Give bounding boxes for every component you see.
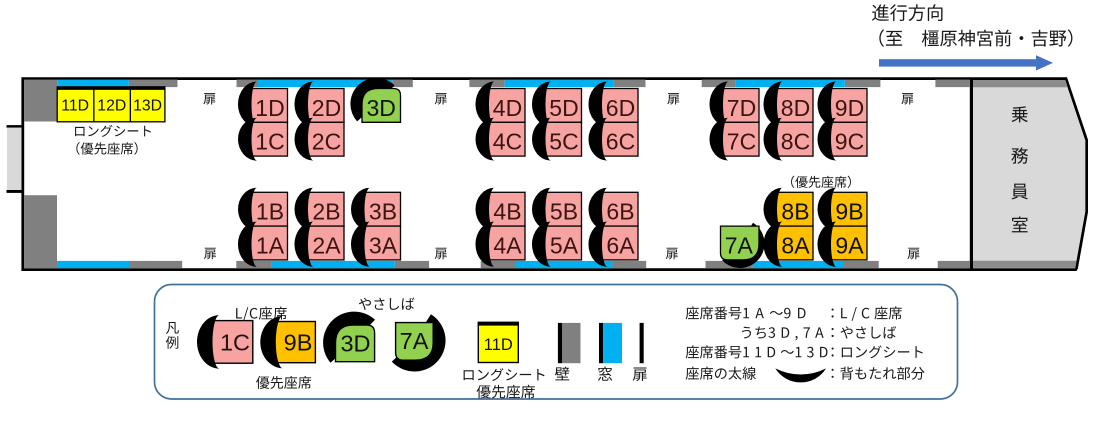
- svg-text:9A: 9A: [835, 233, 864, 259]
- svg-text:4B: 4B: [493, 199, 521, 225]
- svg-text:8A: 8A: [781, 233, 810, 259]
- svg-text:5C: 5C: [549, 129, 578, 155]
- svg-text:7C: 7C: [727, 129, 756, 155]
- svg-text:7A: 7A: [400, 328, 429, 354]
- svg-text:7A: 7A: [725, 233, 754, 259]
- svg-text:6A: 6A: [606, 233, 635, 259]
- svg-text:1D: 1D: [255, 95, 284, 121]
- svg-text:2D: 2D: [312, 95, 341, 121]
- svg-text:9D: 9D: [835, 95, 864, 121]
- svg-text:6C: 6C: [606, 129, 635, 155]
- svg-text:9B: 9B: [835, 199, 863, 225]
- svg-text:9B: 9B: [284, 330, 313, 356]
- svg-text:1C: 1C: [255, 129, 284, 155]
- svg-text:4A: 4A: [493, 233, 522, 259]
- svg-text:6D: 6D: [606, 95, 635, 121]
- svg-text:8D: 8D: [781, 95, 810, 121]
- svg-text:5A: 5A: [550, 233, 579, 259]
- svg-text:7D: 7D: [727, 95, 756, 121]
- svg-text:11D: 11D: [484, 336, 513, 354]
- svg-text:1B: 1B: [256, 199, 284, 225]
- svg-text:3D: 3D: [366, 95, 395, 121]
- svg-text:13D: 13D: [133, 98, 162, 115]
- svg-text:3A: 3A: [369, 233, 398, 259]
- svg-text:2A: 2A: [312, 233, 341, 259]
- svg-text:3D: 3D: [340, 331, 370, 357]
- svg-text:2C: 2C: [312, 129, 341, 155]
- svg-text:5D: 5D: [549, 95, 578, 121]
- svg-text:2B: 2B: [312, 199, 340, 225]
- svg-text:1A: 1A: [256, 233, 285, 259]
- svg-text:8B: 8B: [781, 199, 809, 225]
- svg-text:3B: 3B: [369, 199, 397, 225]
- svg-text:11D: 11D: [61, 98, 89, 115]
- svg-text:6B: 6B: [606, 199, 634, 225]
- svg-text:9C: 9C: [835, 129, 864, 155]
- svg-text:4D: 4D: [493, 95, 522, 121]
- svg-text:1C: 1C: [220, 330, 250, 356]
- svg-text:12D: 12D: [97, 98, 126, 115]
- svg-text:4C: 4C: [493, 129, 522, 155]
- svg-text:5B: 5B: [550, 199, 578, 225]
- svg-text:8C: 8C: [781, 129, 810, 155]
